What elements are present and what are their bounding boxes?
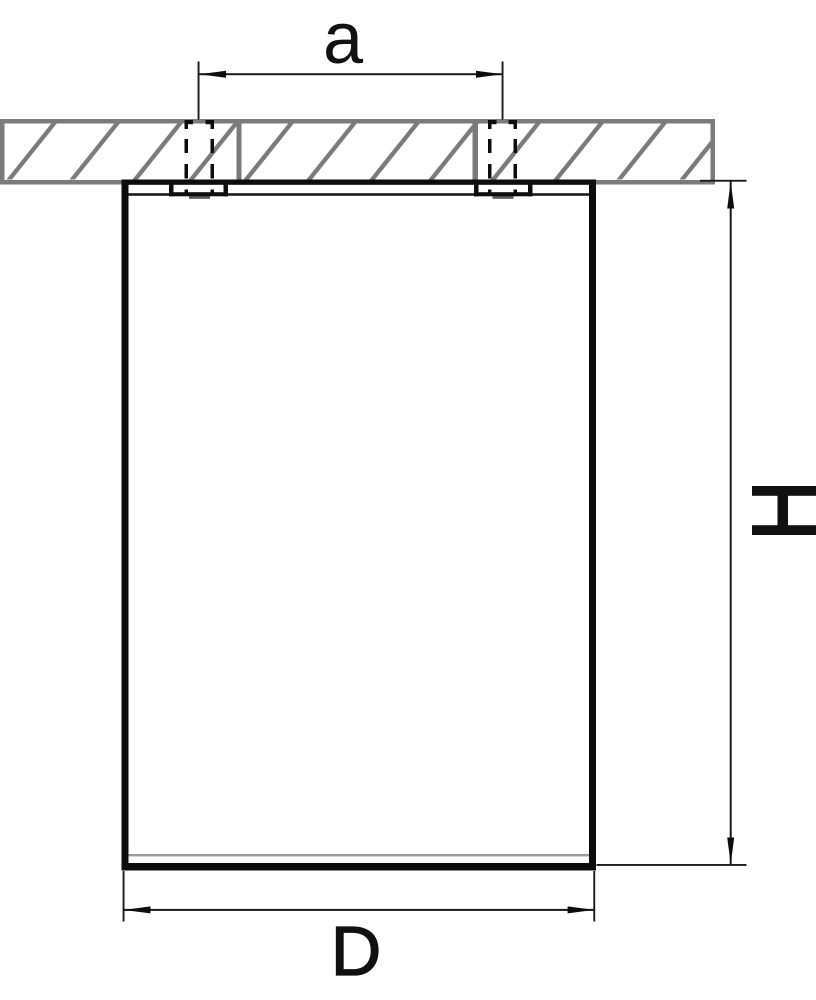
svg-text:a: a	[323, 0, 364, 79]
svg-text:D: D	[331, 912, 382, 990]
